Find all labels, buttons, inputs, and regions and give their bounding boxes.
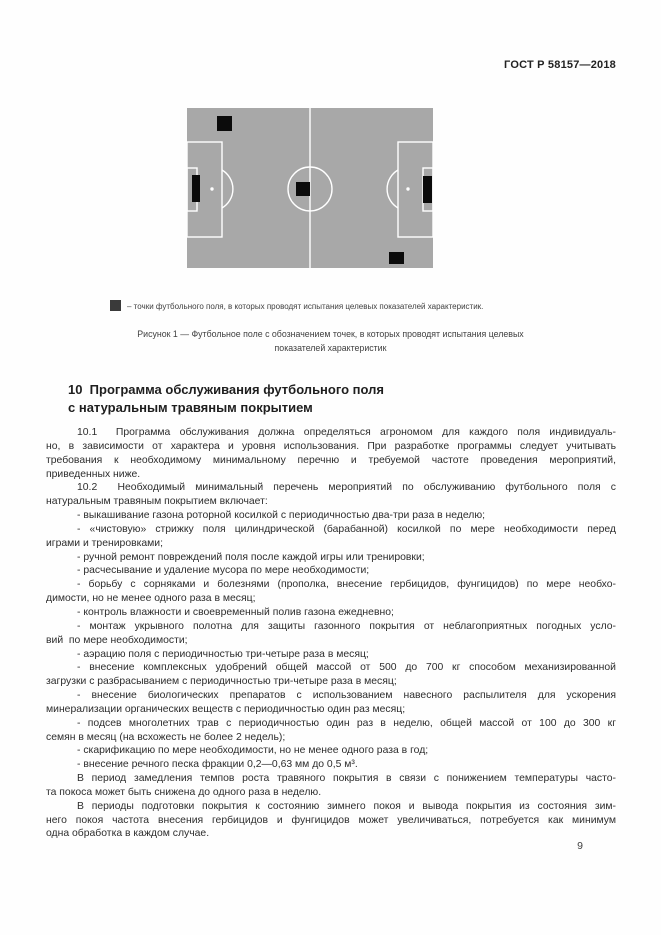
test-point-marker: [192, 175, 200, 202]
document-page: ГОСТ Р 58157—2018 – точки футбольного по…: [0, 0, 661, 935]
text-line: та покоса может быть снижена до одного р…: [46, 786, 616, 800]
text-line: - борьбу с сорняками и болезнями (пропол…: [46, 578, 616, 592]
text-line: димости, но не менее одного раза в месяц…: [46, 592, 616, 606]
running-header: ГОСТ Р 58157—2018: [504, 59, 616, 71]
text-line: минерализации органических веществ с пер…: [46, 703, 616, 717]
text-line: - ручной ремонт повреждений поля после к…: [46, 551, 616, 565]
text-line: требования к необходимому минимальному п…: [46, 454, 616, 468]
text-line: семян в месяц (на всхожесть не более 2 н…: [46, 731, 616, 745]
test-point-marker: [296, 182, 310, 196]
penalty-spot-left: [210, 187, 213, 190]
text-line: - «чистовую» стрижку поля цилиндрической…: [46, 523, 616, 537]
section-heading-line2: с натуральным травяным покрытием: [68, 399, 384, 417]
body-text: 10.1 Программа обслуживания должна опред…: [46, 426, 616, 841]
text-line: - внесение биологических препаратов с ис…: [46, 689, 616, 703]
text-line: 10.1 Программа обслуживания должна опред…: [46, 426, 616, 440]
figure-caption-line1: Рисунок 1 — Футбольное поле с обозначени…: [0, 328, 661, 342]
text-line: - внесение комплексных удобрений общей м…: [46, 661, 616, 675]
test-point-marker: [389, 252, 404, 264]
penalty-spot-right: [406, 187, 409, 190]
section-heading-line1: 10 Программа обслуживания футбольного по…: [68, 381, 384, 399]
text-line: - аэрацию поля с периодичностью три-четы…: [46, 648, 616, 662]
figure-caption: Рисунок 1 — Футбольное поле с обозначени…: [0, 328, 661, 355]
text-line: него покоя частота внесения гербицидов и…: [46, 814, 616, 828]
text-line: - скарификацию по мере необходимости, но…: [46, 744, 616, 758]
figure-caption-line2: показателей характеристик: [0, 342, 661, 356]
text-line: но, в зависимости от характера и уровня …: [46, 440, 616, 454]
text-line: - внесение речного песка фракции 0,2—0,6…: [46, 758, 616, 772]
figure-legend: – точки футбольного поля, в которых пров…: [110, 300, 483, 311]
text-line: натуральным травяным покрытием включает:: [46, 495, 616, 509]
text-line: 10.2 Необходимый минимальный перечень ме…: [46, 481, 616, 495]
section-heading: 10 Программа обслуживания футбольного по…: [68, 381, 384, 416]
text-line: - контроль влажности и своевременный пол…: [46, 606, 616, 620]
text-line: загрузки с разбрасыванием с периодичност…: [46, 675, 616, 689]
page-number: 9: [560, 840, 600, 852]
text-line: играми и тренировками;: [46, 537, 616, 551]
text-line: - расчесывание и удаление мусора по мере…: [46, 564, 616, 578]
football-field-figure: [187, 108, 433, 268]
text-line: В периоды подготовки покрытия к состояни…: [46, 800, 616, 814]
test-point-marker: [423, 176, 432, 203]
text-line: В период замедления темпов роста травяно…: [46, 772, 616, 786]
text-line: одна обработка в каждом случае.: [46, 827, 616, 841]
figure-legend-text: – точки футбольного поля, в которых пров…: [127, 300, 483, 311]
test-point-marker: [217, 116, 232, 131]
text-line: - монтаж укрывного полотна для защиты га…: [46, 620, 616, 634]
text-line: - подсев многолетних трав с периодичност…: [46, 717, 616, 731]
text-line: вий по мере необходимости;: [46, 634, 616, 648]
test-point-swatch-icon: [110, 300, 121, 311]
text-line: - выкашивание газона роторной косилкой с…: [46, 509, 616, 523]
text-line: приведенных ниже.: [46, 468, 616, 482]
